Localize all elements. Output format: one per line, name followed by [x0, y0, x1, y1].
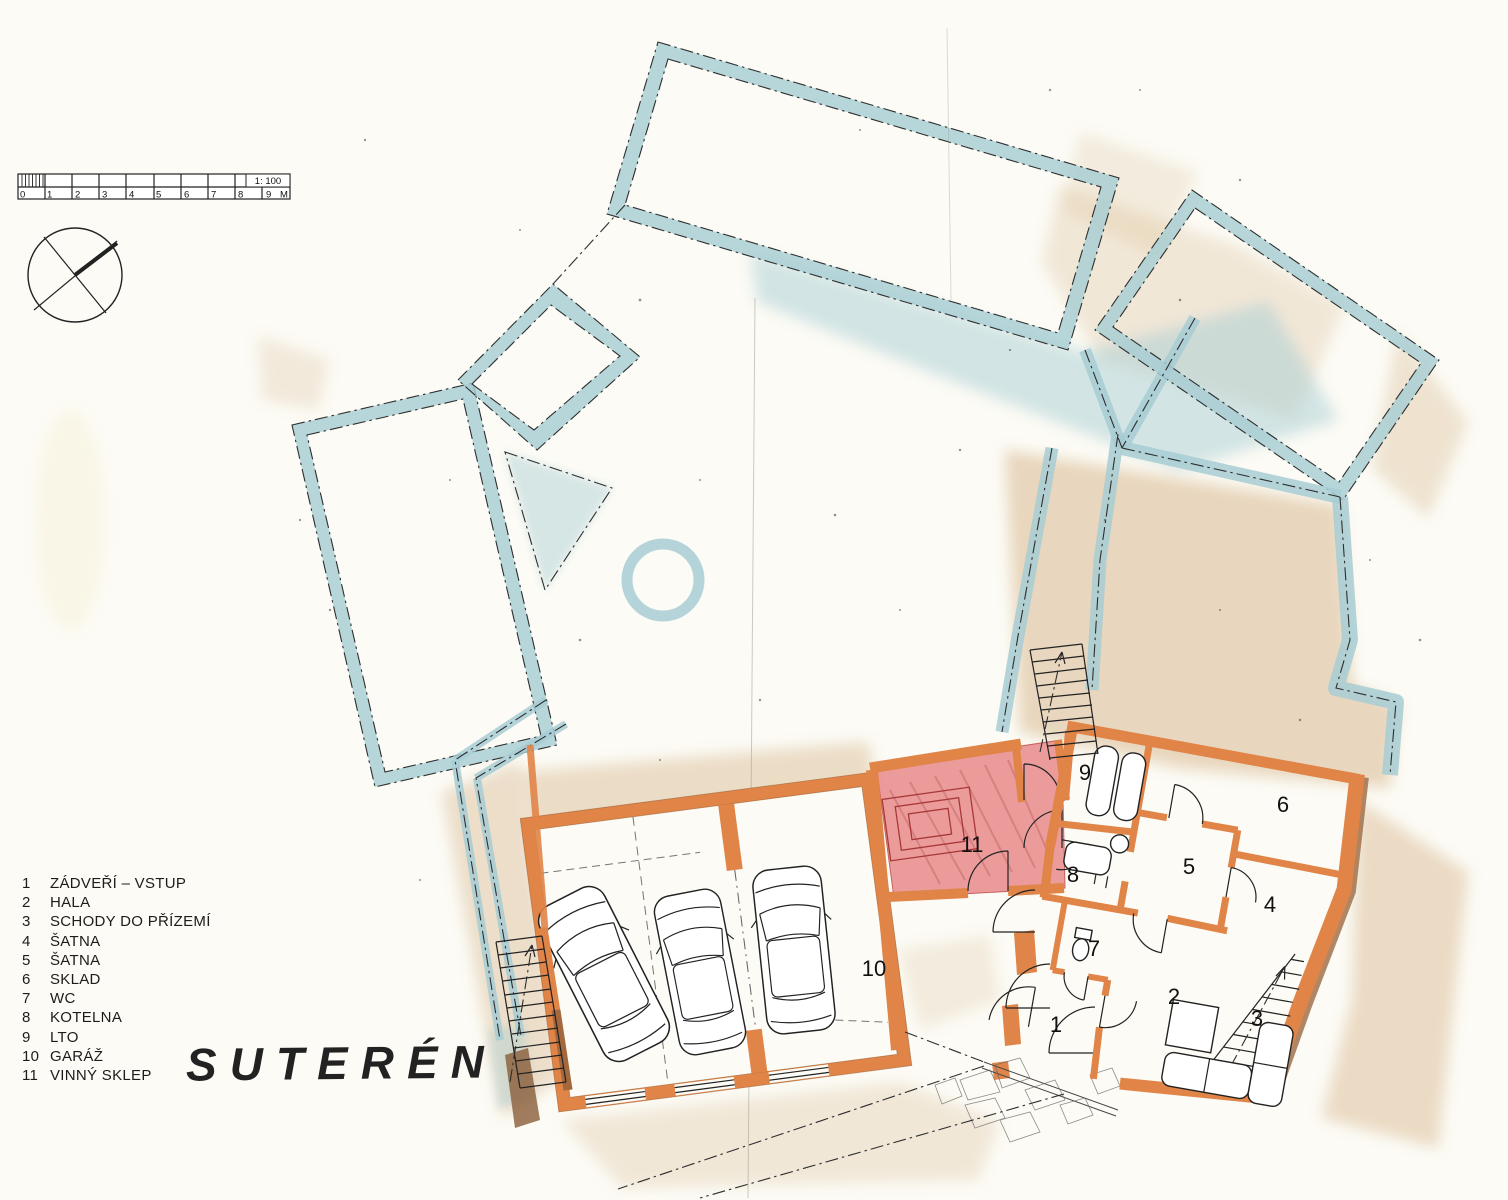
well-circle — [627, 544, 699, 616]
upper-annex — [458, 284, 640, 450]
room-number-10: 10 — [862, 956, 886, 981]
page-title: SUTERÉN — [186, 1034, 497, 1091]
svg-text:7: 7 — [211, 190, 216, 201]
legend-item-8: 8KOTELNA — [22, 1008, 211, 1027]
legend-item-2: 2HALA — [22, 893, 211, 912]
upper-building-west — [292, 383, 557, 787]
wall-pier — [1014, 930, 1037, 975]
scale-bar-hatch — [22, 174, 43, 187]
svg-text:9: 9 — [266, 190, 271, 201]
legend-item-11: 11VINNÝ SKLEP — [22, 1066, 211, 1085]
svg-text:3: 3 — [102, 190, 107, 201]
scale-unit-label: M — [280, 190, 288, 201]
wall-pier — [1002, 1004, 1021, 1046]
svg-text:4: 4 — [129, 190, 134, 201]
room-number-4: 4 — [1264, 892, 1276, 917]
svg-text:8: 8 — [238, 190, 243, 201]
room-number-3: 3 — [1251, 1006, 1263, 1031]
svg-text:5: 5 — [156, 190, 161, 201]
basement-floor-plan-sheet: 1 2 3 4 5 6 7 8 9 10 11 1: 100 0 1 2 3 4… — [0, 0, 1508, 1200]
site-plan-drawing: 1 2 3 4 5 6 7 8 9 10 11 1: 100 0 1 2 3 4… — [0, 0, 1508, 1200]
legend-item-1: 1ZÁDVEŘÍ – VSTUP — [22, 874, 211, 893]
room-number-8: 8 — [1067, 862, 1079, 887]
scale-ratio-label: 1: 100 — [255, 176, 281, 187]
scale-bar: 1: 100 0 1 2 3 4 5 6 7 8 9 M — [18, 174, 290, 201]
room-number-5: 5 — [1183, 854, 1195, 879]
svg-text:6: 6 — [184, 190, 189, 201]
legend-item-10: 10GARÁŽ — [22, 1047, 211, 1066]
legend-item-5: 5ŠATNA — [22, 951, 211, 970]
room-number-9: 9 — [1079, 760, 1091, 785]
room-number-11: 11 — [961, 832, 984, 857]
legend-item-4: 4ŠATNA — [22, 932, 211, 951]
svg-text:1: 1 — [47, 190, 52, 201]
svg-text:0: 0 — [20, 190, 25, 201]
room-number-2: 2 — [1168, 984, 1180, 1009]
legend-item-7: 7WC — [22, 989, 211, 1008]
oil-tanks — [1084, 744, 1147, 822]
svg-text:2: 2 — [75, 190, 80, 201]
room-number-7: 7 — [1088, 936, 1100, 961]
legend-item-6: 6SKLAD — [22, 970, 211, 989]
legend-item-3: 3SCHODY DO PŘÍZEMÍ — [22, 912, 211, 931]
room-legend: 1ZÁDVEŘÍ – VSTUP 2HALA 3SCHODY DO PŘÍZEM… — [22, 874, 211, 1085]
room-number-1: 1 — [1050, 1012, 1062, 1037]
room-number-6: 6 — [1277, 792, 1289, 817]
legend-item-9: 9LTO — [22, 1028, 211, 1047]
compass-icon — [28, 228, 122, 322]
